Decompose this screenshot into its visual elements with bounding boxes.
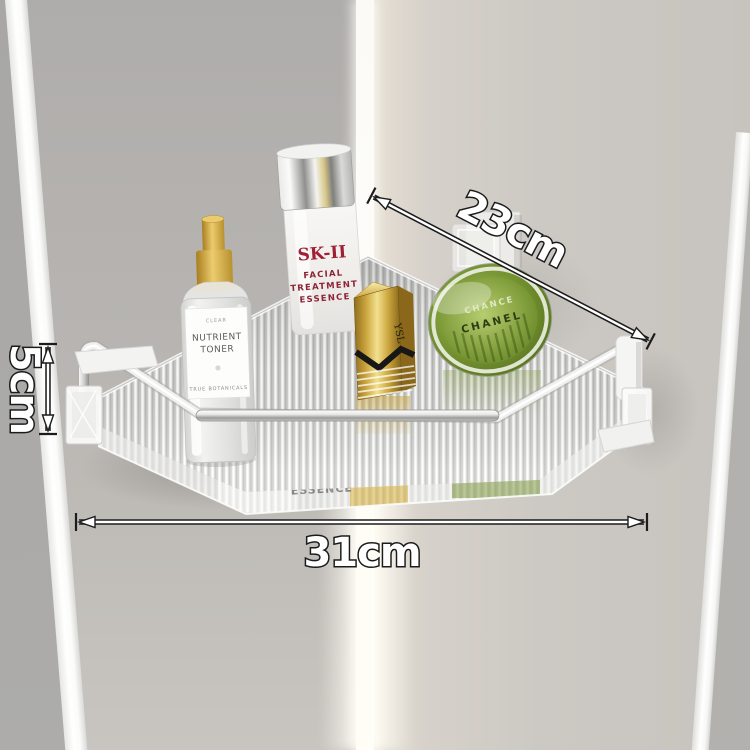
width-label: 31cm <box>303 530 420 576</box>
arrowhead-icon <box>367 188 392 213</box>
toner-name2-text: TONER <box>199 344 234 355</box>
product-photo-stage: SK-II FACIAL TREATMENT ESSENCE CLEAR NUT… <box>0 0 750 750</box>
perfume-reflection <box>443 370 541 416</box>
height-label: 5cm <box>1 344 47 434</box>
dimension-width: 31cm <box>76 513 647 576</box>
toner-name1-text: NUTRIENT <box>192 332 242 344</box>
arrowhead-icon <box>628 513 647 531</box>
toner-tagline-text: CLEAR <box>206 318 228 325</box>
toner-pump-stem <box>202 219 225 253</box>
shelf-scene: SK-II FACIAL TREATMENT ESSENCE CLEAR NUT… <box>0 0 750 750</box>
dimension-height: 5cm <box>1 344 57 434</box>
toner-bottle: CLEAR NUTRIENT TONER TRUE BOTANICALS <box>178 214 257 468</box>
arrowhead-icon <box>76 513 95 531</box>
essence-brand-text: SK-II <box>297 242 347 265</box>
lipstick: YSL <box>354 282 416 400</box>
rail-chrome-bar <box>196 410 499 421</box>
